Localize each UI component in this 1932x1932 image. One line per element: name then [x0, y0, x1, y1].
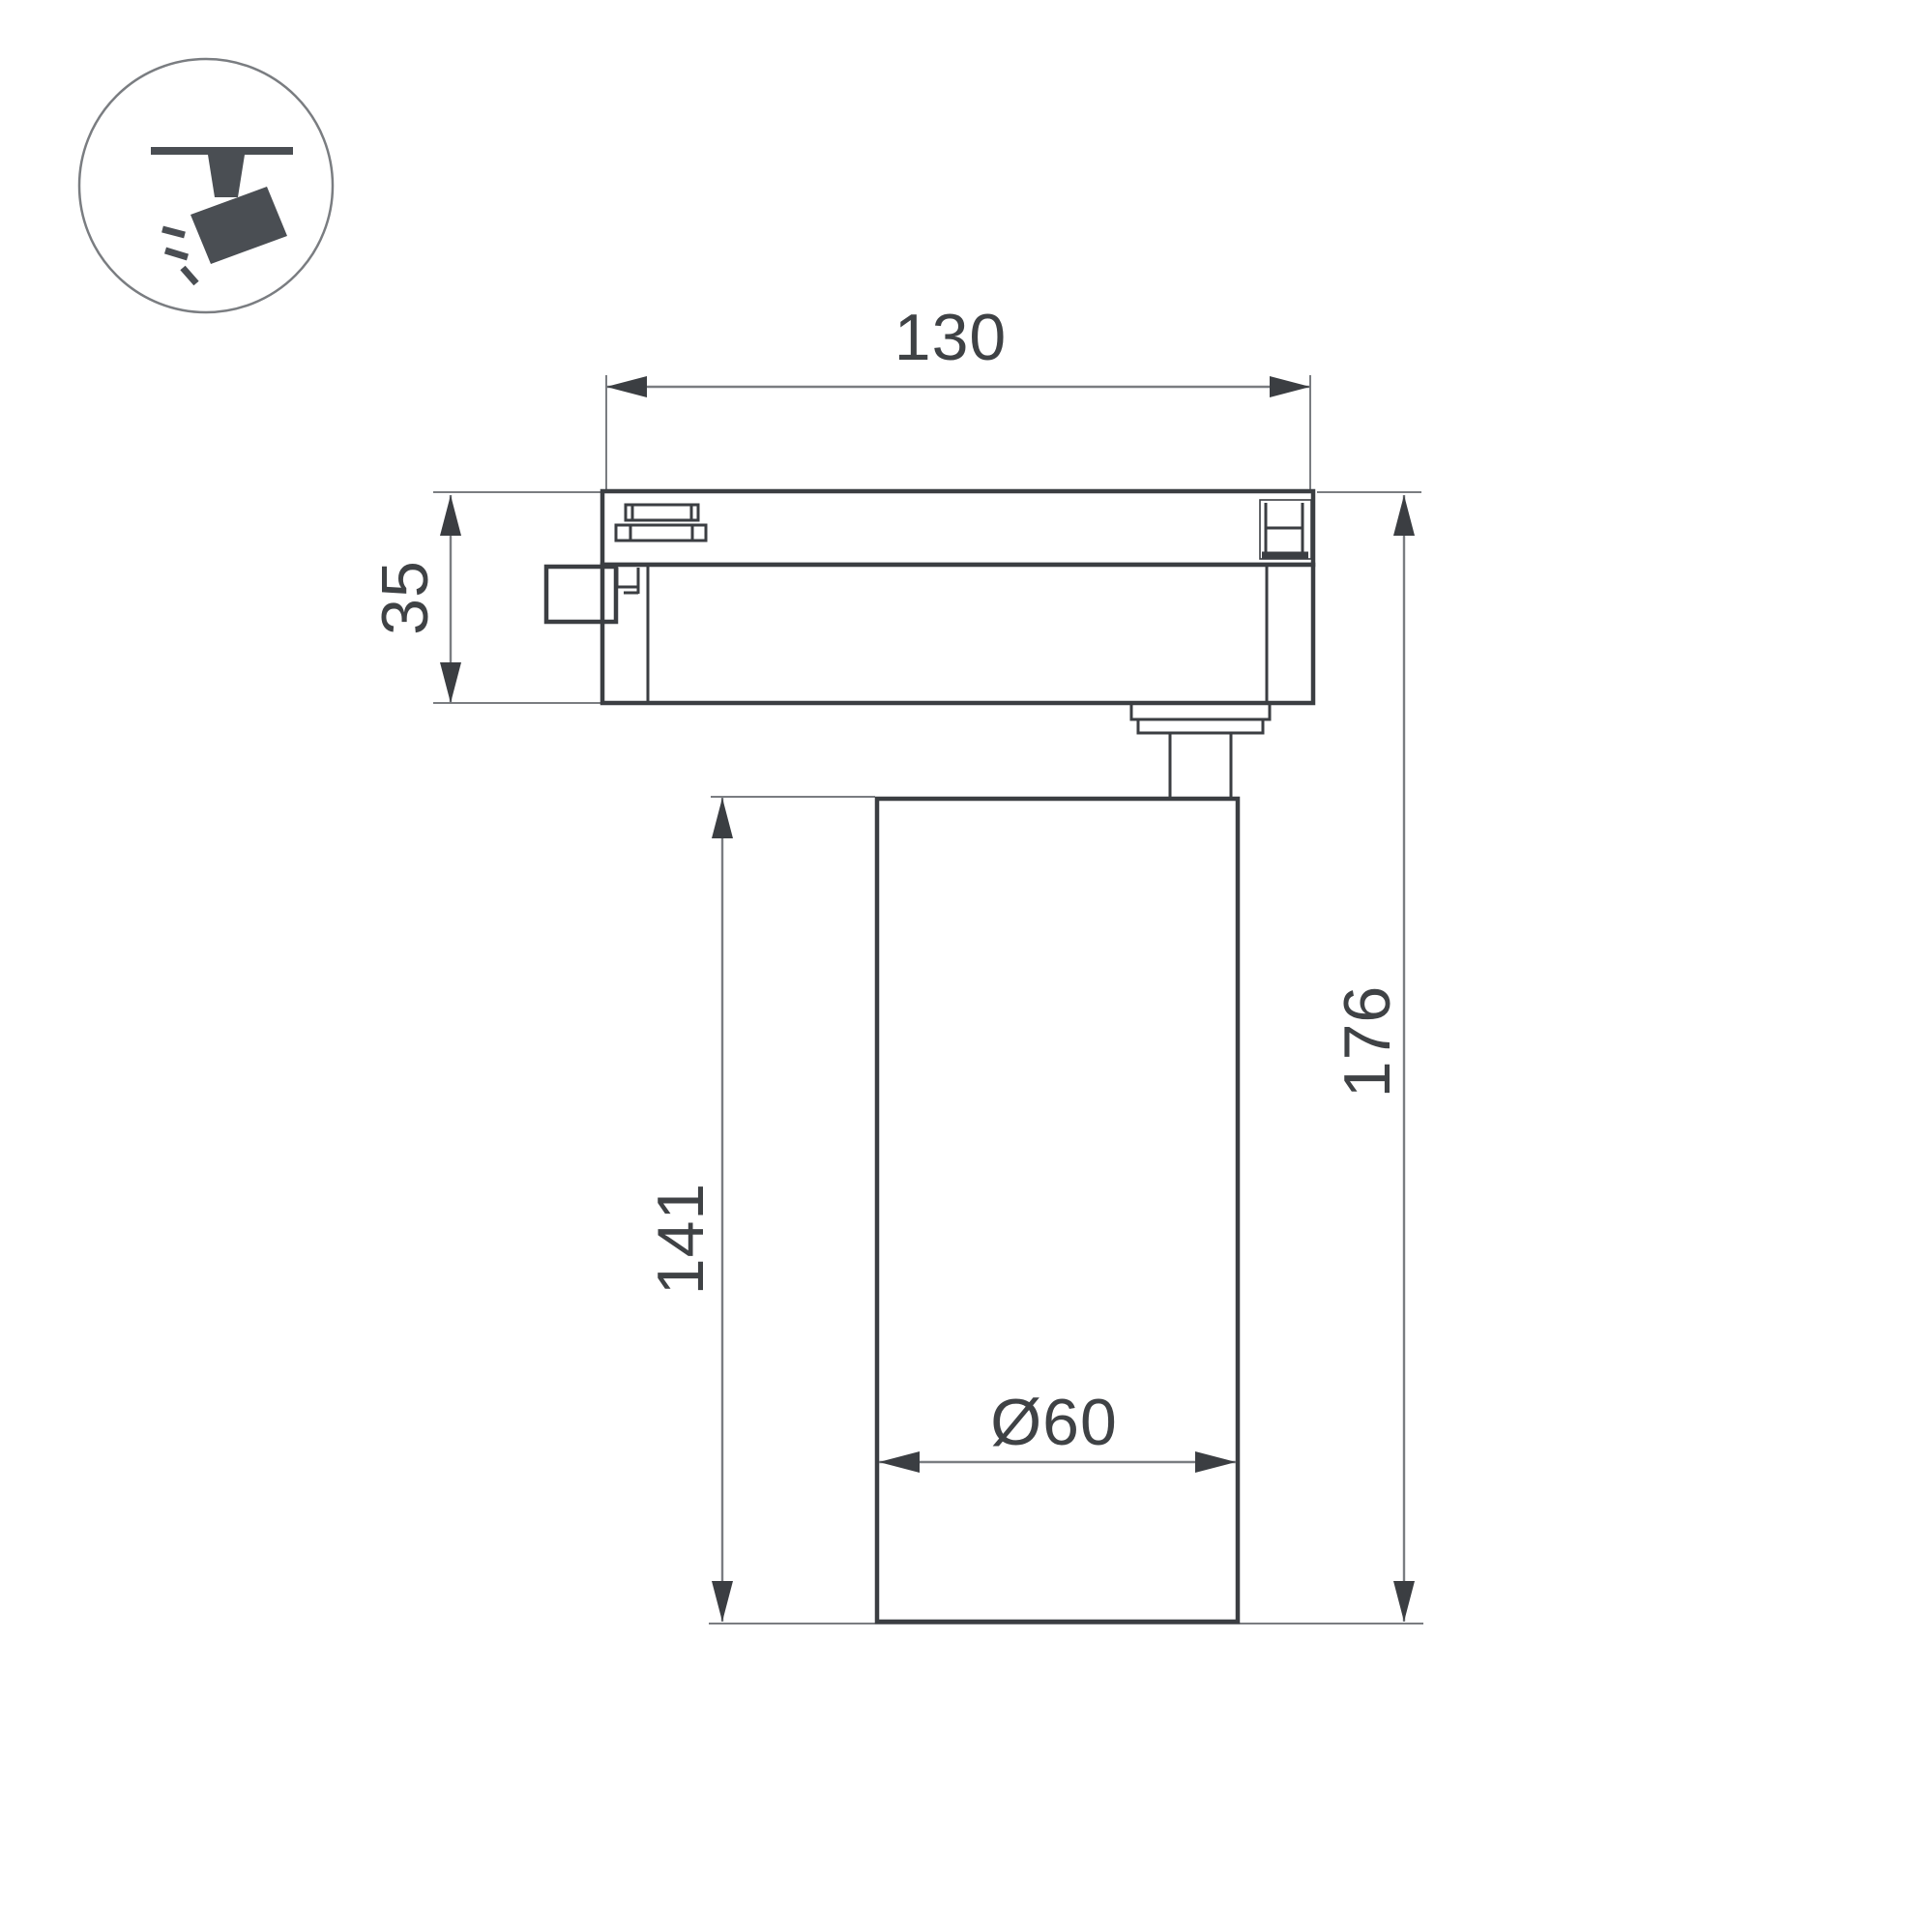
arrow-down-icon	[712, 1581, 733, 1622]
arrow-left-icon	[606, 376, 647, 397]
dimension-track-width: 130	[606, 301, 1310, 397]
arrow-up-icon	[1393, 495, 1415, 536]
icon-track-bar	[151, 147, 293, 155]
drawing-page: 130 35 141 176 Ø60	[0, 0, 1932, 1932]
dim-label-total-height: 176	[1331, 985, 1404, 1098]
dim-label-body-height: 141	[644, 1183, 717, 1295]
adapter-lower-body	[602, 565, 1313, 703]
dimension-adapter-height: 35	[368, 495, 461, 703]
dimension-body-height: 141	[644, 798, 733, 1622]
adapter-upper-body	[602, 491, 1313, 565]
swivel-flange	[1131, 703, 1270, 799]
dim-label-adapter-height: 35	[368, 560, 442, 635]
dim-label-track-width: 130	[894, 301, 1007, 374]
dimension-drawing: 130 35 141 176 Ø60	[0, 0, 1932, 1932]
track-spotlight-icon	[79, 59, 333, 312]
arrow-up-icon	[440, 495, 461, 536]
dim-label-body-diameter: Ø60	[990, 1386, 1118, 1459]
icon-circle-border	[79, 59, 333, 312]
arrow-down-icon	[440, 662, 461, 703]
lamp-body-cylinder	[877, 799, 1238, 1622]
arrow-up-icon	[712, 798, 733, 838]
arrow-down-icon	[1393, 1581, 1415, 1622]
dimension-total-height: 176	[1331, 495, 1415, 1622]
arrow-right-icon	[1270, 376, 1310, 397]
track-adapter	[546, 491, 1313, 799]
